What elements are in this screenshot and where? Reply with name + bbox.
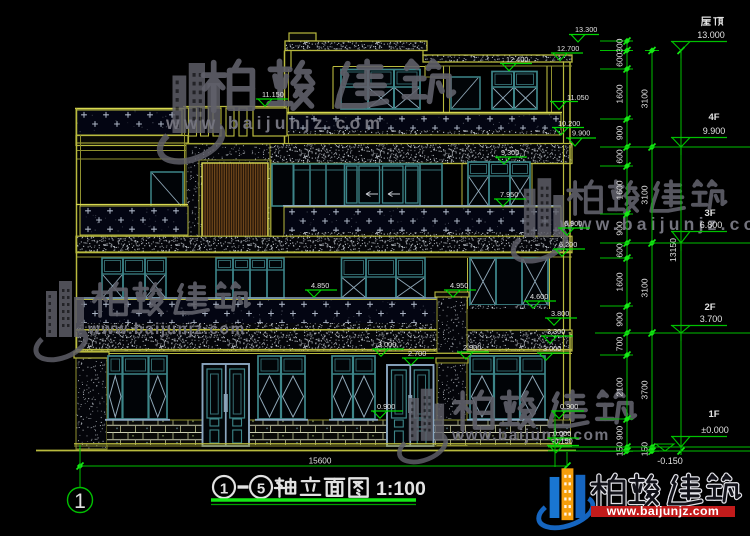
svg-text:0.900: 0.900 xyxy=(560,402,578,411)
svg-text:3.800: 3.800 xyxy=(551,309,569,318)
svg-text:13.000: 13.000 xyxy=(697,30,725,40)
svg-text:3.000: 3.000 xyxy=(378,340,396,349)
svg-text:700: 700 xyxy=(615,337,625,352)
svg-text:www.baijunjz.com: www.baijunjz.com xyxy=(606,504,720,518)
svg-text:6.200: 6.200 xyxy=(559,240,577,249)
svg-text:3.000: 3.000 xyxy=(543,344,561,353)
svg-text:15600: 15600 xyxy=(309,457,332,466)
svg-text:3.300: 3.300 xyxy=(547,327,565,336)
svg-text:1: 1 xyxy=(220,481,228,498)
svg-text:6.900: 6.900 xyxy=(564,219,582,228)
svg-text:3100: 3100 xyxy=(640,278,650,297)
svg-text:300: 300 xyxy=(615,38,625,53)
svg-text:2.700: 2.700 xyxy=(408,349,426,358)
svg-text:2F: 2F xyxy=(704,302,715,313)
svg-text:3F: 3F xyxy=(704,208,715,219)
svg-text:600: 600 xyxy=(615,149,625,164)
svg-text:150: 150 xyxy=(640,442,650,457)
svg-text:-0.150: -0.150 xyxy=(657,456,683,466)
svg-text:9.900: 9.900 xyxy=(703,126,726,136)
svg-text:600: 600 xyxy=(615,52,625,67)
svg-text:1F: 1F xyxy=(708,409,719,420)
svg-text:4.850: 4.850 xyxy=(311,281,329,290)
svg-text:www.baijunjz.com: www.baijunjz.com xyxy=(451,427,610,444)
svg-text:7.950: 7.950 xyxy=(500,190,518,199)
svg-text:±0.000: ±0.000 xyxy=(701,425,728,435)
svg-text:11.050: 11.050 xyxy=(567,93,589,102)
svg-text:3100: 3100 xyxy=(640,185,650,204)
svg-text:13150: 13150 xyxy=(668,238,678,262)
svg-text:11.150: 11.150 xyxy=(262,90,284,99)
svg-text:www.baijunjz.com: www.baijunjz.com xyxy=(165,113,384,133)
svg-text:1: 1 xyxy=(74,490,86,513)
svg-text:2100: 2100 xyxy=(615,377,625,396)
svg-text:www.baijunjz.com: www.baijunjz.com xyxy=(87,321,246,338)
svg-text:1600: 1600 xyxy=(615,180,625,199)
svg-text:6.800: 6.800 xyxy=(700,220,723,230)
svg-text:9.300: 9.300 xyxy=(501,148,519,157)
svg-text:1600: 1600 xyxy=(615,84,625,103)
svg-text:4.950: 4.950 xyxy=(450,281,468,290)
svg-text:150: 150 xyxy=(615,442,625,457)
svg-text:1600: 1600 xyxy=(615,272,625,291)
svg-text:900: 900 xyxy=(615,312,625,327)
svg-text:10.200: 10.200 xyxy=(558,119,580,128)
svg-text:13.300: 13.300 xyxy=(575,25,597,34)
svg-text:1:100: 1:100 xyxy=(376,478,426,500)
svg-text:900: 900 xyxy=(615,126,625,141)
svg-text:12.700: 12.700 xyxy=(557,44,579,53)
svg-text:2.900: 2.900 xyxy=(463,343,481,352)
svg-text:5: 5 xyxy=(257,481,265,498)
svg-text:9.900: 9.900 xyxy=(572,129,590,138)
svg-text:12.400: 12.400 xyxy=(506,55,528,64)
svg-text:4.600: 4.600 xyxy=(530,292,548,301)
svg-text:4F: 4F xyxy=(708,112,719,123)
svg-text:3700: 3700 xyxy=(640,380,650,399)
svg-text:0.900: 0.900 xyxy=(377,402,395,411)
svg-text:900: 900 xyxy=(615,426,625,441)
svg-text:600: 600 xyxy=(615,243,625,258)
svg-text:900: 900 xyxy=(615,221,625,236)
svg-text:3100: 3100 xyxy=(640,89,650,108)
svg-text:3.700: 3.700 xyxy=(700,314,723,324)
